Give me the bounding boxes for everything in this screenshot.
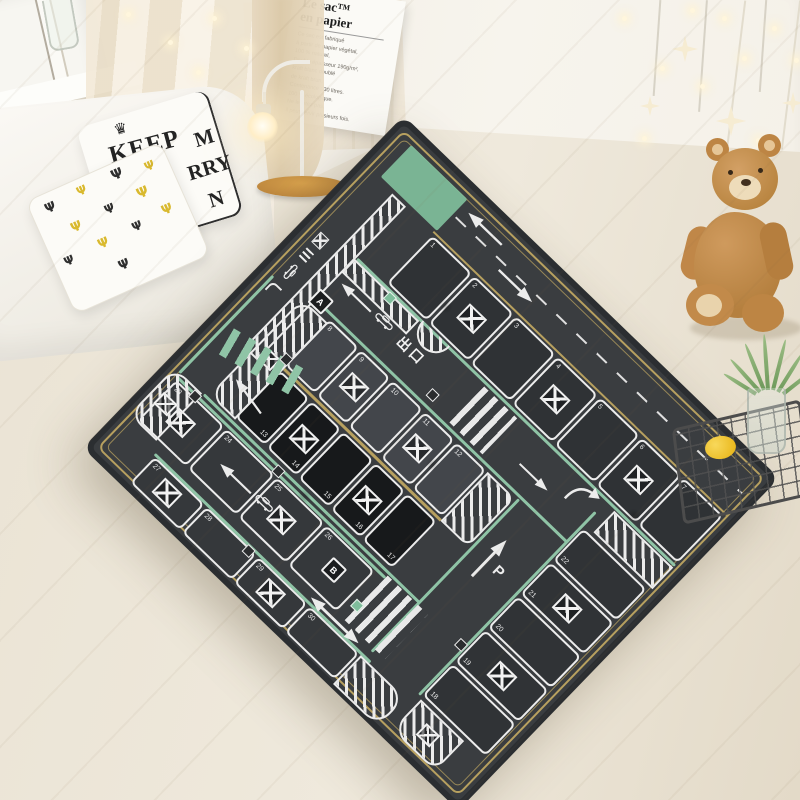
cactus-icon: Ψ	[129, 218, 144, 235]
spot-number: 19	[461, 657, 471, 667]
fairy-light-dot	[742, 56, 747, 61]
teddy-eye	[758, 168, 763, 173]
spot-number: 22	[559, 555, 569, 565]
spot-number: 15	[322, 490, 332, 500]
teddy-ear-inner	[712, 144, 723, 155]
spot-marker-badge	[426, 388, 440, 402]
lamp-pole	[300, 90, 304, 186]
teddy-nose	[741, 179, 751, 186]
spot-number: 1	[429, 242, 437, 250]
cactus-icon: Ψ	[74, 182, 89, 199]
fairy-light-dot	[722, 16, 727, 21]
fairy-light-dot	[772, 26, 777, 31]
cactus-icon: Ψ	[96, 235, 112, 253]
cactus-icon: Ψ	[62, 252, 77, 269]
cactus-icon: Ψ	[69, 218, 85, 236]
parking-direction-arrow-icon	[465, 535, 511, 582]
cactus-icon: Ψ	[142, 157, 157, 174]
spot-number: 29	[254, 563, 264, 573]
cactus-icon: Ψ	[109, 165, 126, 184]
no-parking-x-icon	[338, 372, 369, 403]
cactus-icon: Ψ	[116, 256, 132, 274]
cactus-icon: Ψ	[102, 200, 117, 217]
crossed-box-icon	[311, 232, 329, 250]
no-parking-x-icon	[486, 661, 517, 692]
spot-number: 8	[325, 325, 333, 333]
spot-number: 28	[203, 513, 213, 523]
room-scene: Le sac™ en papier Ce sac est fabriqué à …	[0, 0, 800, 800]
spot-number: 16	[354, 521, 364, 531]
spot-number: 27	[151, 463, 161, 473]
spot-number: 20	[494, 623, 504, 633]
fairy-light-dot	[196, 70, 201, 75]
cactus-icon: Ψ	[159, 201, 175, 219]
fairy-light-dot	[660, 66, 665, 71]
fairy-light-dot	[642, 136, 647, 141]
fairy-light-dot	[168, 40, 173, 45]
spot-number: 4	[554, 363, 562, 371]
fairy-light-dot	[244, 46, 249, 51]
teddy-foot-pad	[696, 294, 722, 317]
no-parking-x-icon	[289, 423, 320, 454]
no-parking-x-icon	[623, 465, 654, 496]
no-parking-x-icon	[456, 303, 487, 334]
no-parking-x-icon	[153, 392, 178, 417]
fairy-light-dot	[794, 58, 799, 63]
fairy-light-dot	[622, 16, 627, 21]
no-parking-x-icon	[152, 478, 183, 509]
no-parking-x-icon	[352, 484, 383, 515]
teddy-leg	[742, 294, 784, 332]
pillow-text-fragment: RRY	[185, 149, 235, 186]
cactus-icon: Ψ	[43, 199, 59, 217]
teddy-eye	[728, 170, 733, 175]
spot-number: 5	[596, 403, 604, 411]
no-parking-x-icon	[539, 384, 570, 415]
plant-leaf	[762, 334, 770, 390]
spot-number: 17	[385, 552, 395, 562]
bars-icon	[299, 247, 315, 263]
fairy-light-dot	[126, 12, 131, 17]
spot-number: 12	[453, 448, 463, 458]
cactus-icon: Ψ	[134, 183, 151, 202]
spot-number: 13	[258, 429, 268, 439]
no-parking-x-icon	[552, 593, 583, 624]
spot-number: 21	[527, 589, 537, 599]
lamp-bulb-glow	[247, 112, 278, 143]
spot-number: 25	[273, 483, 283, 493]
fairy-light-dot	[690, 8, 695, 13]
no-parking-x-icon	[255, 577, 286, 608]
fairy-light-dot	[212, 16, 217, 21]
spot-number: 11	[421, 418, 431, 428]
no-parking-x-icon	[416, 723, 441, 748]
spot-number: 14	[290, 459, 300, 469]
hook-icon	[265, 280, 283, 298]
spot-number: 18	[429, 691, 439, 701]
pillow-text-fragment: N	[205, 185, 227, 213]
spot-number: 2	[470, 282, 478, 290]
spot-number: 9	[357, 356, 365, 364]
spot-number: 26	[323, 531, 333, 541]
spot-number: 30	[306, 612, 316, 622]
spot-number: 24	[222, 435, 232, 445]
spot-number: 6	[638, 444, 646, 452]
teddy-ear-inner	[764, 140, 775, 151]
plant-glass-vase	[747, 388, 786, 454]
spot-number: 10	[389, 387, 399, 397]
crown-icon: ♛	[112, 118, 130, 139]
fairy-light-dot	[700, 84, 705, 89]
car-glyph-icon	[278, 259, 303, 284]
road-arrow-right-icon	[515, 459, 552, 495]
spot-number: 3	[512, 322, 520, 330]
pillow-text-fragment: M	[191, 123, 217, 153]
